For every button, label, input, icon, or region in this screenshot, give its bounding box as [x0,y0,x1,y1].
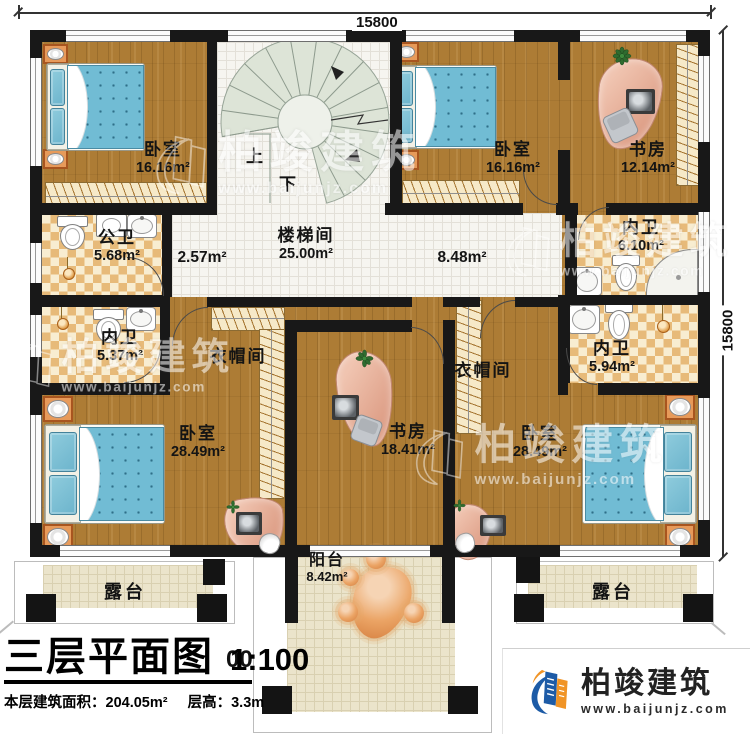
floor-height-label: 层高：3.3m [188,695,265,711]
room-label-bedroom-tl: 卧室 16.16m² [118,140,208,176]
window [60,545,170,557]
window [406,30,514,42]
closet-rack [211,307,285,331]
nightstand-lamp [43,396,73,422]
window [698,56,710,142]
column [683,594,713,622]
window [66,30,170,42]
stairs-up-label: 上 [246,142,263,167]
wall [565,203,577,295]
window [560,545,680,557]
wall [558,295,570,383]
room-label-public-bath: 公卫 5.68m² [77,228,157,264]
room-label-bedroom-tr: 卧室 16.16m² [468,140,558,176]
room-label-study-center: 书房 18.41m² [363,422,453,458]
wall [30,383,170,395]
room-label-inner-bath-br: 内卫 5.94m² [572,339,652,375]
room-label-stair-hall: 楼梯间 25.00m² [256,226,356,262]
wall [30,203,217,215]
window [698,398,710,520]
brand-logo-icon [525,666,571,718]
window [30,243,42,283]
title-underline [4,680,252,684]
wall [30,295,170,307]
wall [558,383,568,395]
room-label-cloakroom-left: 衣帽间 [198,347,278,367]
decorative-stone [338,602,358,622]
perspective-line [0,621,14,634]
bed-sheet-fold [79,427,100,521]
title-block: 三层平面图 1:100 本层建筑面积：204.05m² 层高：3.3m [4,636,309,712]
drain-cord [662,303,663,321]
sink [568,305,600,334]
wall [606,203,710,215]
window [228,30,346,42]
pillow [50,69,65,106]
brand-name: 柏竣建筑 [581,669,729,699]
wall [385,203,523,215]
floor-drain [63,268,75,280]
window [698,212,710,292]
wall [515,297,562,307]
room-label-study-tr: 书房 12.14m² [603,140,693,176]
nightstand-lamp [43,149,68,169]
dimension-ext [18,5,20,19]
plant-icon [355,349,374,368]
column [448,686,478,714]
brand-block: 柏竣建筑 www.baijunjz.com [502,648,750,734]
bed [582,424,697,524]
pillow [49,432,77,472]
pillow [49,475,77,515]
pillow [50,108,65,145]
floor-area-label: 本层建筑面积：204.05m² [4,695,168,711]
column [516,557,540,583]
column [514,594,544,622]
dimension-right-value: 15800 [719,306,736,356]
wall [558,150,570,203]
room-label-terrace-right: 露台 [583,578,643,604]
toilet [605,302,633,340]
area-label-corridor: 8.48m² [427,249,497,267]
room-label-balcony: 阳台 8.42m² [292,552,362,585]
pillow [664,475,692,515]
wall [443,297,480,307]
room-label-inner-bath-left: 内卫 5.37m² [80,328,160,364]
room-label-inner-bath-tr: 内卫 6.10m² [601,218,681,254]
dimension-ext [710,5,712,19]
monitor-icon [480,515,506,536]
wall [570,295,710,305]
plant-icon [453,499,466,512]
page-title: 三层平面图 [4,636,214,678]
toilet [612,255,640,291]
decorative-stone [404,603,424,623]
bed [394,65,497,149]
column [197,594,227,622]
wall [556,203,578,215]
bed-mattress [415,67,496,147]
room-label-cloakroom-right: 衣帽间 [443,361,523,381]
bed [44,424,165,524]
monitor-icon [332,395,359,420]
bed-sheet-fold [644,427,664,521]
wall [390,42,402,203]
bed-mattress [585,427,664,521]
dimension-line-right [722,30,724,557]
floor-plan-page: 卧室 16.16m² 卧室 16.16m² 书房 12.14m² 公卫 5.68… [0,0,750,734]
nightstand-lamp [43,44,68,64]
plant-icon [612,46,632,66]
floor-drain [57,318,69,330]
monitor-icon [236,512,262,535]
room-label-bedroom-br: 卧室 28.49m² [495,424,585,460]
monitor-icon [626,89,655,114]
wall [285,320,412,332]
spiral-staircase [217,42,390,205]
column [26,594,56,622]
wall [160,297,170,383]
wall [442,557,455,623]
perspective-line [711,622,726,635]
bed-mattress [67,65,144,149]
wall [207,42,217,203]
column [203,559,225,585]
window [30,315,42,357]
nightstand-lamp [665,394,695,420]
room-label-bedroom-bl: 卧室 28.49m² [153,424,243,460]
dimension-top-value: 15800 [352,14,402,31]
stairs-down-label: 下 [279,170,296,195]
wall [598,383,710,395]
brand-website: www.baijunjz.com [581,702,729,716]
bed [46,63,145,151]
drawing-scale: 1:100 [230,642,309,678]
floor-drain [657,320,670,333]
window [30,415,42,523]
bed-mattress [79,427,164,521]
wall [285,320,297,545]
area-label-vestibule: 2.57m² [167,249,237,267]
window [580,30,686,42]
window [30,58,42,166]
pillow [664,432,692,472]
wall [207,297,412,307]
wall [558,42,570,80]
bed-sheet-fold [415,67,436,147]
bed-sheet-fold [67,65,88,149]
room-label-terrace-left: 露台 [95,578,155,604]
